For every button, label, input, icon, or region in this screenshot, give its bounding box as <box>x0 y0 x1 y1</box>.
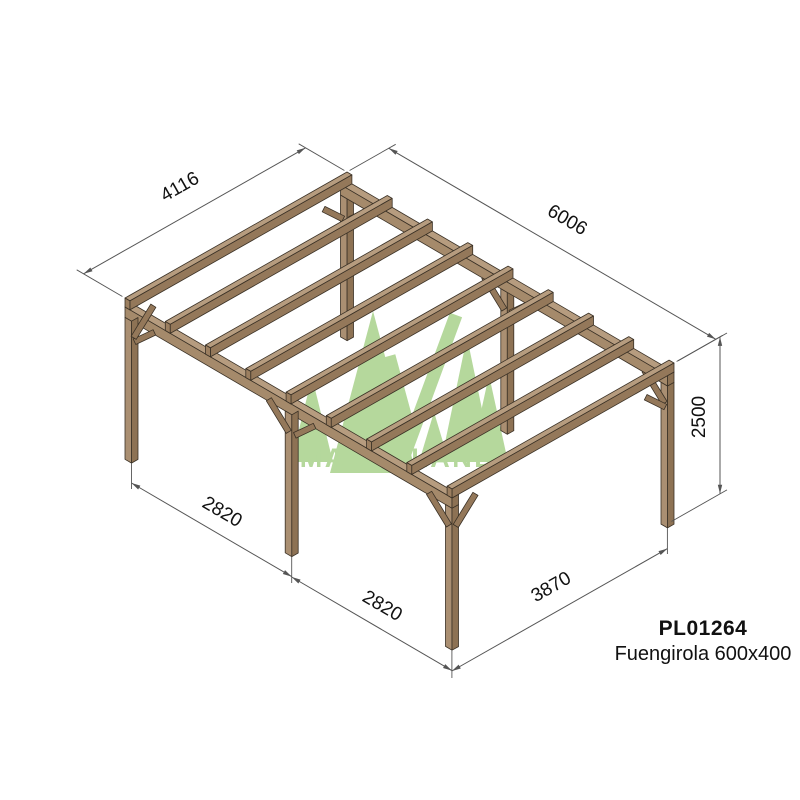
extension-line <box>77 270 123 297</box>
extension-line <box>671 490 727 522</box>
dimension-line <box>84 148 306 274</box>
dimension-arrow <box>443 664 452 670</box>
dimension-arrow <box>132 483 141 489</box>
product-code: PL01264 <box>593 616 800 642</box>
back-corner-post-side-face <box>668 382 675 528</box>
product-info: PL01264 Fuengirola 600x400 <box>593 616 800 666</box>
dimension-arrow <box>389 148 398 154</box>
dimension-arrow <box>283 570 292 576</box>
front-corner-post-front-face <box>125 317 132 463</box>
dimension-arrow <box>292 577 301 583</box>
dimension-arrow <box>84 267 93 273</box>
dimension-label-total_length: 6006 <box>544 201 591 240</box>
pergola-drawing-page: MADERLAND411660062500282028203870 PL0126… <box>0 0 800 800</box>
dimension-arrow <box>297 148 306 154</box>
dimension-arrow <box>658 549 667 555</box>
dimension-label-post_height: 2500 <box>689 396 710 438</box>
dimension-label-rafter_length: 4116 <box>157 168 203 206</box>
dimension-arrow <box>718 485 722 494</box>
dimension-arrow <box>452 665 461 671</box>
dimension-label-side_span: 3870 <box>528 568 575 607</box>
extension-line <box>350 144 396 170</box>
pergola-technical-drawing: MADERLAND411660062500282028203870 <box>0 0 800 800</box>
dimension-arrow <box>707 333 716 339</box>
product-name: Fuengirola 600x400 <box>593 642 800 666</box>
